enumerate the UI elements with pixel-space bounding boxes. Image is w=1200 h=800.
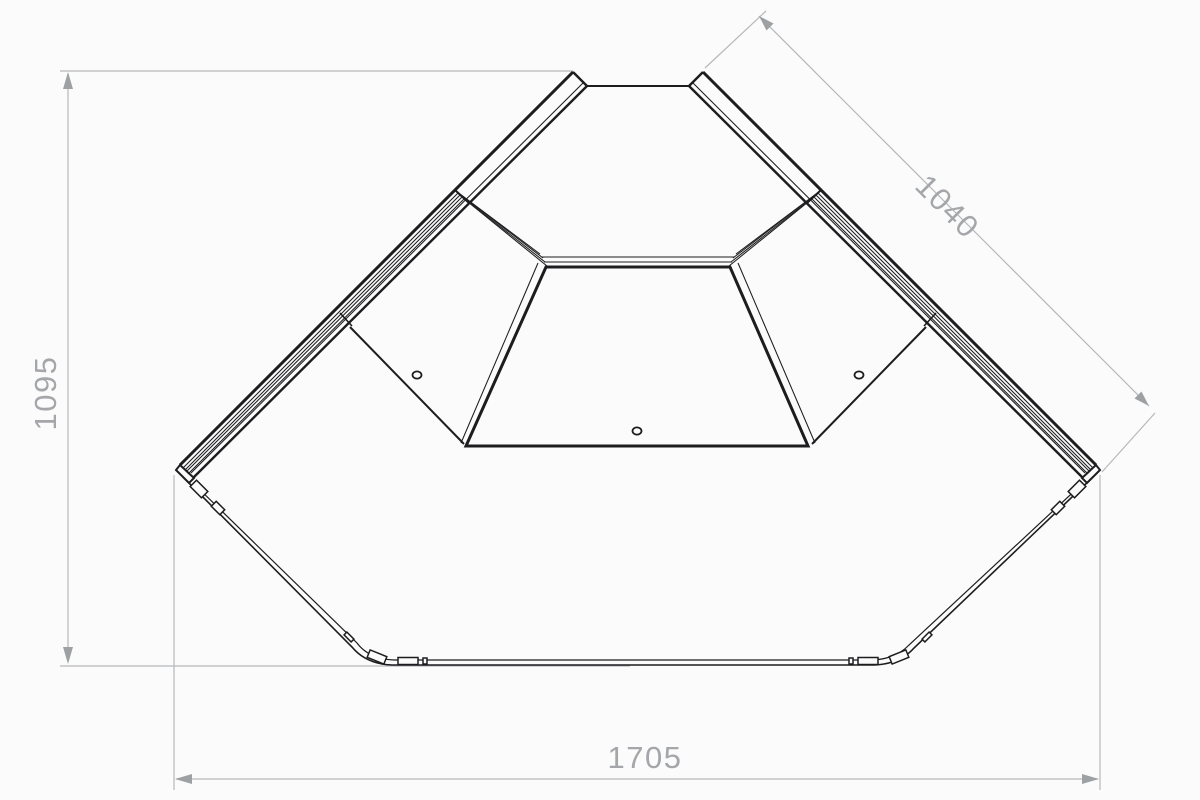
shelf-edge-line [814,197,1090,472]
arrow-right-icon [1082,774,1099,784]
corner-post [1082,465,1100,483]
band-line [468,202,547,266]
seam-line [350,327,464,444]
glass-front-left [176,72,587,483]
shelf-edge-line [188,199,464,474]
wall-inner-line [194,484,1082,660]
drain-hole [413,371,422,378]
seam-line [812,327,926,444]
wall-fitting [889,650,909,664]
dimension-diagonal: 1040 [705,11,1155,472]
display-well [461,263,815,446]
band-line [464,198,545,262]
glass-end-cap [689,72,703,86]
dimension-width-label: 1705 [608,740,683,775]
arrow-down-icon [63,647,73,664]
wall-fitting [858,658,878,665]
shelf-edge-line [185,195,460,470]
drain-holes [413,371,864,434]
extension-line-top [705,11,766,68]
glass-inner-edge [689,86,1082,477]
corner-post [176,465,194,483]
dimension-height-label: 1095 [28,356,63,431]
glass-inner-edge [194,86,587,477]
corner-glass-bands [456,191,820,266]
shelf-edge-line [183,193,458,468]
band-line [460,194,543,258]
technical-drawing: 1095 1705 1040 [0,0,1200,800]
counter-back-wall [183,477,1093,665]
drawing-sheet: 1095 1705 1040 [0,0,1200,800]
extension-line-bottom [1102,413,1155,472]
dimension-diagonal-label: 1040 [909,168,987,246]
wall-fitting [922,632,932,642]
wall-fitting [367,650,387,664]
drain-hole [855,371,864,378]
wall-fitting [423,658,427,664]
glass-outer-edge [180,72,573,465]
well-outer-line [461,263,538,443]
dimension-height: 1095 [28,71,630,666]
shelf-edge-line [186,197,462,472]
band-line [729,202,808,266]
wall-outer-line [183,477,1093,665]
band-line [733,194,816,258]
arrow-up-icon [63,72,73,89]
glass-thickness-line [191,82,584,473]
well-outline [466,267,808,446]
glass-front-right [689,72,1100,483]
drain-hole [633,427,642,434]
wall-fitting [1051,501,1064,514]
countertop-seams [340,313,936,444]
shelf-edge-line [812,199,1088,474]
glass-thickness-line [692,82,1085,473]
arrow-left-icon [175,774,192,784]
band-line [731,198,812,262]
glass-outer-edge [703,72,1096,465]
wall-fitting [398,658,418,665]
glass-end-cap [573,72,587,86]
wall-fitting [211,501,224,514]
wall-fitting [849,658,853,664]
dimension-width: 1705 [174,475,1100,790]
well-outer-line [738,263,815,443]
